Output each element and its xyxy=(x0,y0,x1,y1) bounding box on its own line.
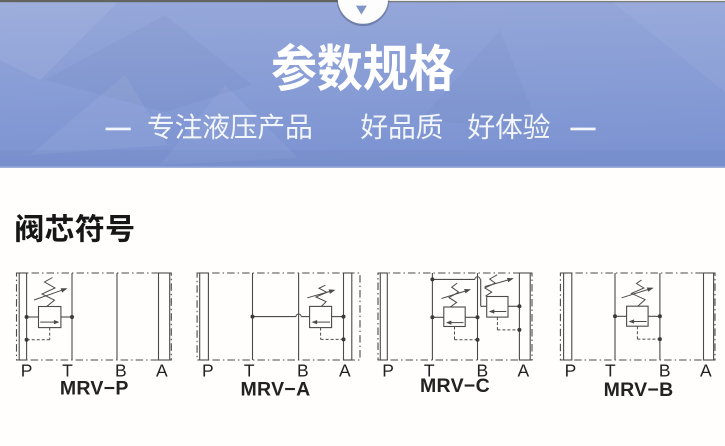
svg-text:A: A xyxy=(156,361,168,381)
svg-text:P: P xyxy=(202,361,214,381)
svg-text:T: T xyxy=(605,361,616,381)
svg-text:P: P xyxy=(21,361,33,381)
svg-text:B: B xyxy=(659,361,671,381)
svg-text:MRV−C: MRV−C xyxy=(420,375,490,397)
svg-text:P: P xyxy=(382,361,394,381)
svg-text:P: P xyxy=(565,361,577,381)
svg-text:MRV−A: MRV−A xyxy=(241,379,311,401)
svg-text:A: A xyxy=(339,361,351,381)
svg-text:A: A xyxy=(518,361,530,381)
svg-text:B: B xyxy=(297,361,309,381)
svg-text:T: T xyxy=(244,361,255,381)
svg-text:A: A xyxy=(700,361,712,381)
svg-text:MRV−P: MRV−P xyxy=(60,378,129,400)
svg-text:MRV−B: MRV−B xyxy=(604,379,674,401)
